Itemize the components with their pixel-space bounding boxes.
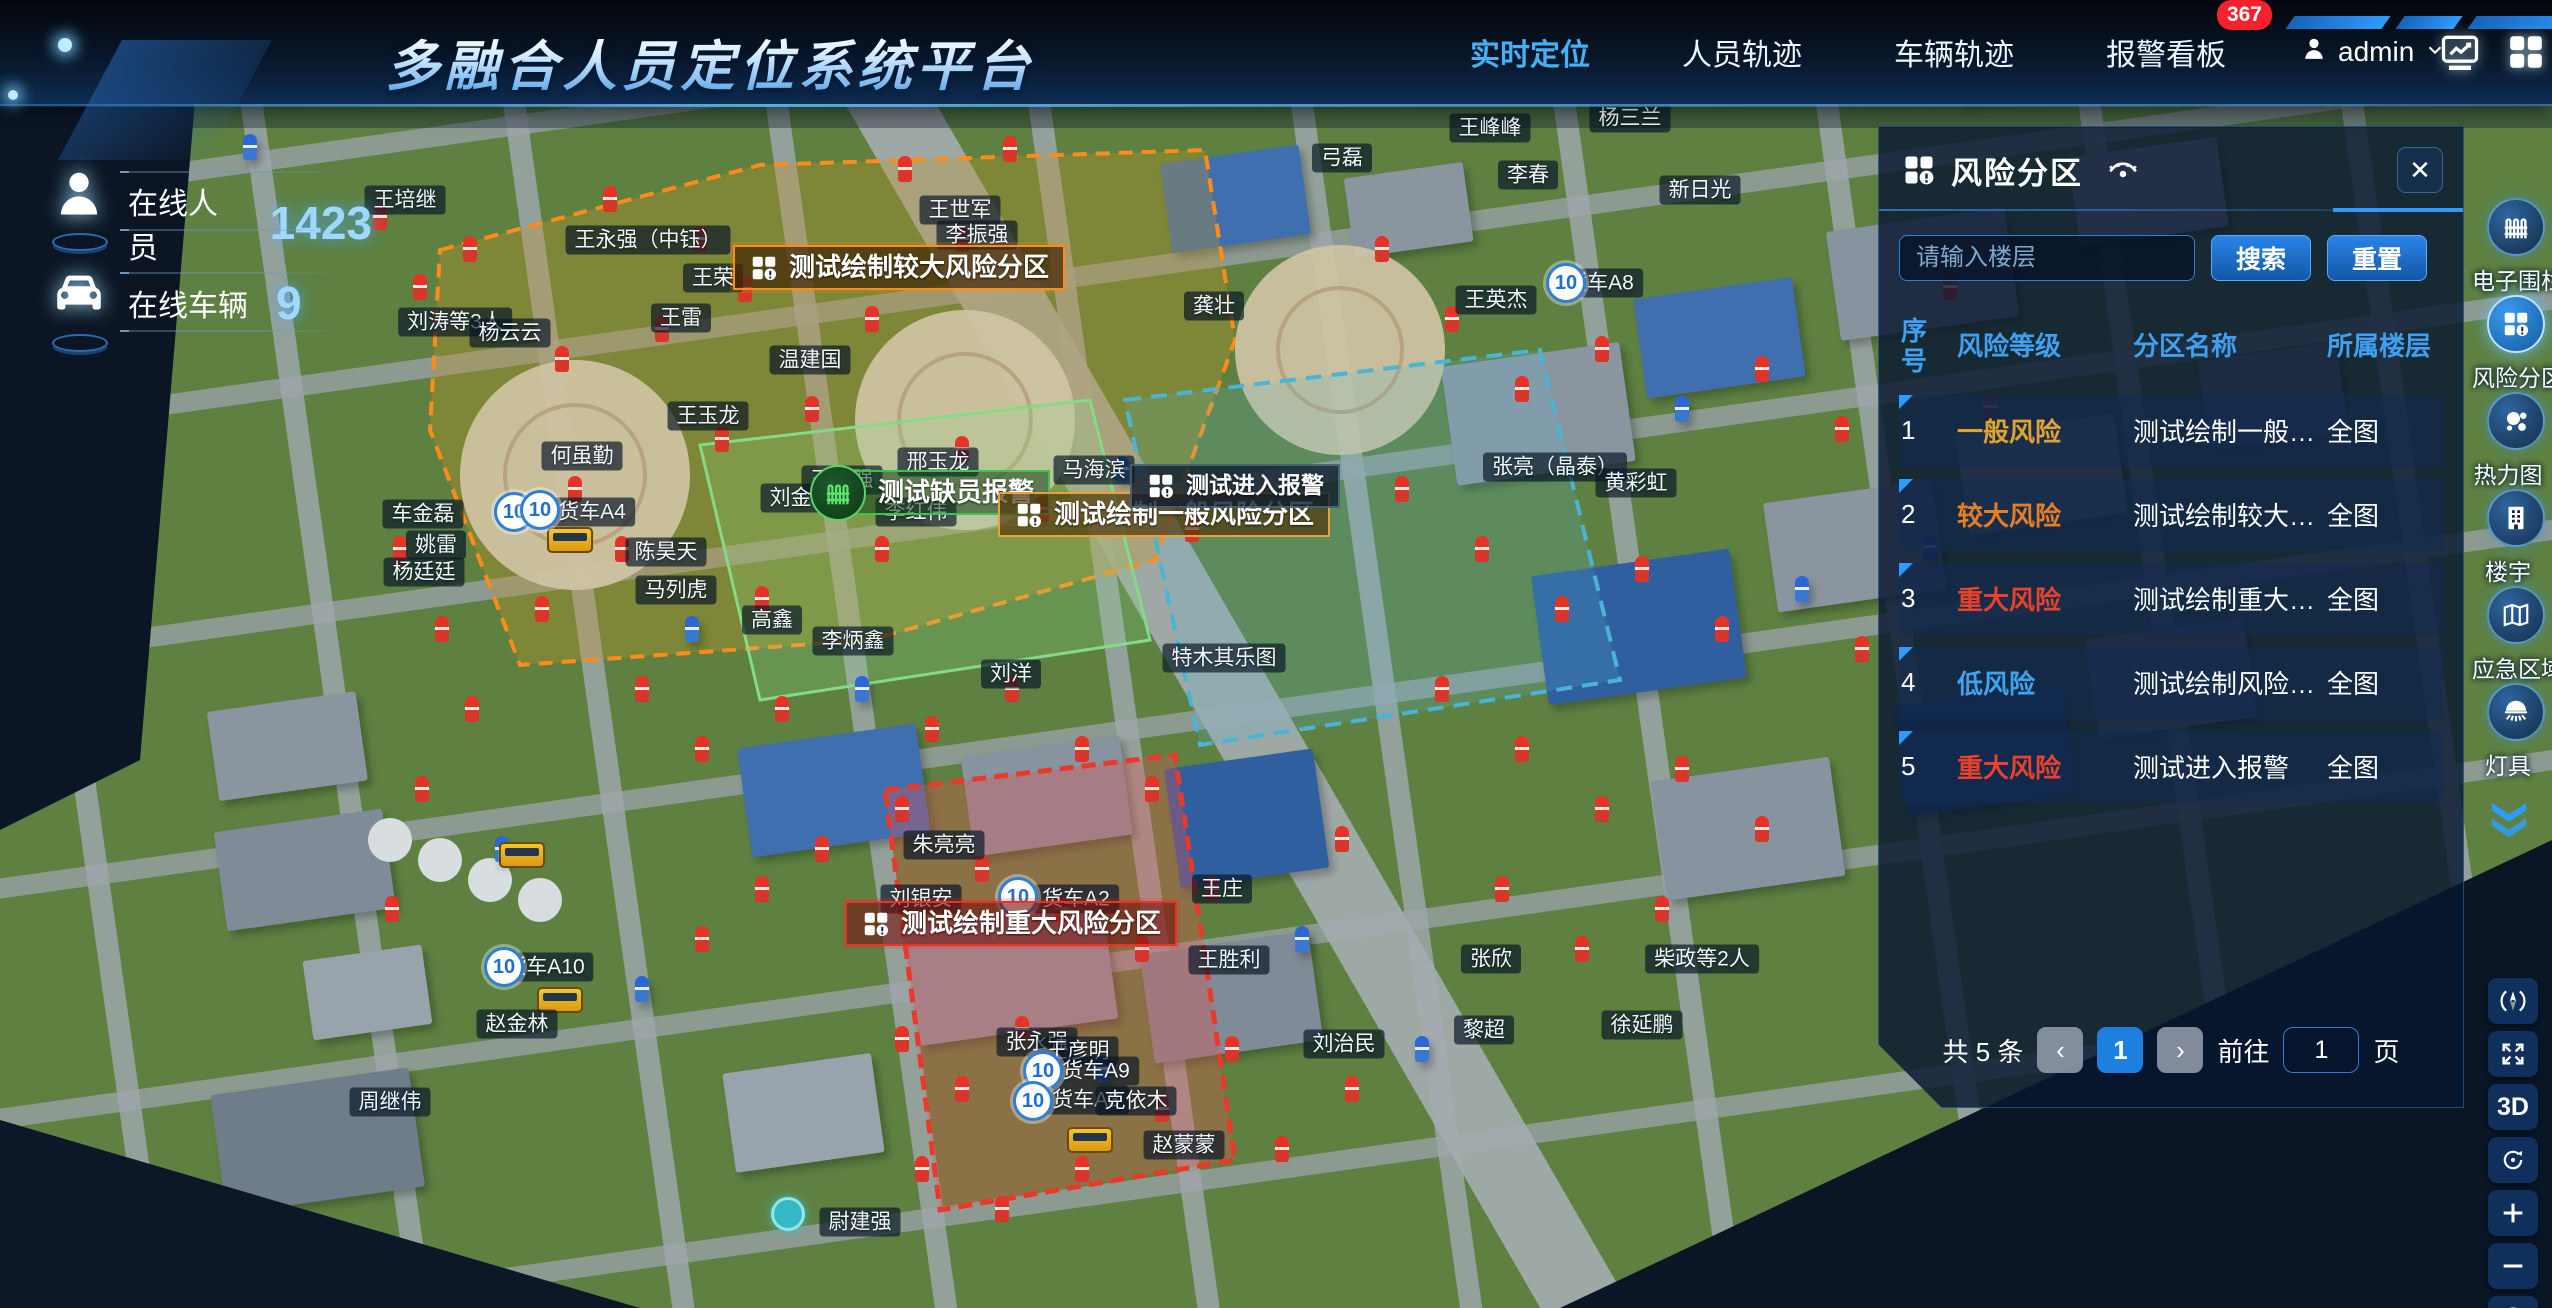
stat-online-vehicles: 在线车辆9 <box>42 272 372 332</box>
zone-label-text: 测试绘制重大风险分区 <box>901 908 1161 939</box>
page-unit: 页 <box>2373 1032 2399 1069</box>
person-label: 刘治民 <box>1304 1030 1385 1059</box>
row-index: 3 <box>1901 583 1949 614</box>
riskgrid-icon <box>1014 500 1044 530</box>
stat-label: 在线人员 <box>128 179 242 267</box>
risk-zone-panel: 风险分区 ✕ 搜索 重置 序号风险等级分区名称所属楼层 1一般风险测试绘制一般…… <box>1878 126 2464 1108</box>
person-marker[interactable] <box>1335 826 1349 852</box>
person-label: 王永强（中钰） <box>566 226 731 255</box>
person-label: 温建国 <box>770 346 851 375</box>
toolbar-heatmap[interactable]: 热力图 <box>2480 392 2552 490</box>
person-label: 赵金林 <box>477 1010 558 1039</box>
total-count: 共 5 条 <box>1943 1032 2024 1069</box>
toolbar-buildings[interactable]: 楼宇 <box>2480 489 2552 587</box>
divider <box>1879 209 2463 211</box>
monitor-chart-icon[interactable] <box>2438 30 2482 74</box>
glow-dot <box>8 90 18 100</box>
person-marker[interactable] <box>1495 876 1509 902</box>
person-marker[interactable] <box>1475 536 1489 562</box>
header-actions <box>2438 0 2548 104</box>
person-marker[interactable] <box>815 836 829 862</box>
person-marker[interactable] <box>1755 816 1769 842</box>
person-label: 王胜利 <box>1189 946 1270 975</box>
next-page-button[interactable]: › <box>2157 1027 2203 1073</box>
riskgrid-icon <box>1146 471 1176 501</box>
current-page[interactable]: 1 <box>2097 1027 2143 1073</box>
person-marker[interactable] <box>955 1076 969 1102</box>
toolbar-label: 楼宇 <box>2472 553 2544 587</box>
prev-page-button[interactable]: ‹ <box>2037 1027 2083 1073</box>
nav-item-realtime-location[interactable]: 实时定位 <box>1470 30 1590 74</box>
visibility-eye-icon[interactable] <box>2103 153 2143 187</box>
person-label: 克依木 <box>1096 1087 1177 1116</box>
cluster-badge[interactable]: 10 <box>1546 263 1586 303</box>
risk-zone-row[interactable]: 1一般风险测试绘制一般…全图 <box>1899 395 2443 467</box>
column-header: 分区名称 <box>2133 332 2319 362</box>
user-icon <box>2300 35 2328 70</box>
person-marker[interactable] <box>1375 236 1389 262</box>
map-control-compass[interactable] <box>2488 978 2538 1024</box>
toolbar-label: 电子围栏 <box>2472 262 2544 296</box>
person-marker[interactable] <box>1675 396 1689 422</box>
person-label: 徐延鹏 <box>1602 1011 1683 1040</box>
person-label: 王培继 <box>365 186 446 215</box>
person-marker[interactable] <box>1225 1036 1239 1062</box>
person-marker[interactable] <box>465 696 479 722</box>
person-marker[interactable] <box>915 1156 929 1182</box>
zone-floor: 全图 <box>2327 748 2457 785</box>
person-marker[interactable] <box>805 396 819 422</box>
zone-label[interactable]: 测试绘制重大风险分区 <box>845 901 1177 946</box>
person-marker[interactable] <box>685 616 699 642</box>
toolbar-electronic-fence[interactable]: 电子围栏 <box>2480 198 2552 296</box>
close-icon[interactable]: ✕ <box>2397 147 2443 193</box>
person-label: 马海滨 <box>1054 456 1135 485</box>
table-header: 序号风险等级分区名称所属楼层 <box>1899 307 2443 395</box>
zone-name: 测试进入报警 <box>2133 748 2319 785</box>
person-marker[interactable] <box>1795 576 1809 602</box>
person-label: 姚雷 <box>406 531 466 560</box>
person-label: 王雷 <box>651 304 711 333</box>
stat-label: 在线车辆 <box>128 281 248 325</box>
column-header: 序号 <box>1901 317 1949 377</box>
app-root: 王培继王永强（中钰）王荣刘涛等3人杨云云王雷温建国王玉龙何虽勤车金磊姚雷杨廷廷邢… <box>0 0 2552 1308</box>
nav-item-vehicle-track[interactable]: 车辆轨迹 <box>1894 30 2014 74</box>
riskgrid-icon <box>2487 295 2545 353</box>
heatmap-icon <box>2487 392 2545 450</box>
map-control-fullscreen[interactable] <box>2488 1031 2538 1077</box>
building-icon <box>2487 489 2545 547</box>
nav-item-alarm-board[interactable]: 报警看板367 <box>2106 30 2226 74</box>
person-label: 王峰峰 <box>1450 114 1531 143</box>
person-marker[interactable] <box>1345 1076 1359 1102</box>
person-marker[interactable] <box>1435 676 1449 702</box>
person-label: 刘洋 <box>981 660 1041 689</box>
person-marker[interactable] <box>925 716 939 742</box>
cluster-badge[interactable]: 10 <box>484 947 524 987</box>
toolbar-risk-zones[interactable]: 风险分区 <box>2480 295 2552 393</box>
person-label: 特木其乐图 <box>1163 644 1286 673</box>
person-marker[interactable] <box>1835 416 1849 442</box>
person-marker[interactable] <box>1575 936 1589 962</box>
stat-value: 1423 <box>270 200 372 246</box>
person-label: 李春 <box>1498 161 1558 190</box>
page-title: 多融合人员定位系统平台 <box>380 22 1040 101</box>
row-index: 4 <box>1901 667 1949 698</box>
header: 多融合人员定位系统平台 实时定位人员轨迹车辆轨迹报警看板367 admin <box>0 0 2552 104</box>
person-marker[interactable] <box>1395 476 1409 502</box>
person-label: 张欣 <box>1461 945 1521 974</box>
person-label: 周继伟 <box>350 1088 431 1117</box>
zone-label-text: 测试进入报警 <box>1186 472 1324 500</box>
risk-zone-row[interactable]: 4低风险测试绘制风险…全图 <box>1899 647 2443 719</box>
person-marker[interactable] <box>875 536 889 562</box>
toolbar-lights[interactable]: 灯具 <box>2480 683 2552 781</box>
person-label: 李炳鑫 <box>813 627 894 656</box>
pagination: 共 5 条 ‹ 1 › 前往 页 <box>1879 1027 2463 1073</box>
zone-floor: 全图 <box>2327 412 2457 449</box>
user-menu[interactable]: admin <box>2300 0 2446 104</box>
zone-name: 测试绘制风险… <box>2133 664 2319 701</box>
person-marker[interactable] <box>1003 136 1017 162</box>
nav-item-person-track[interactable]: 人员轨迹 <box>1682 30 1802 74</box>
toolbar-label: 热力图 <box>2472 456 2544 490</box>
person-marker[interactable] <box>385 896 399 922</box>
person-marker[interactable] <box>695 736 709 762</box>
person-label: 王英杰 <box>1456 286 1537 315</box>
person-marker[interactable] <box>1755 356 1769 382</box>
person-label: 陈昊天 <box>626 538 707 567</box>
person-marker[interactable] <box>1635 556 1649 582</box>
person-marker[interactable] <box>635 976 649 1002</box>
stat-value: 9 <box>276 280 302 326</box>
person-label: 弓磊 <box>1312 144 1372 173</box>
person-marker[interactable] <box>855 676 869 702</box>
person-marker[interactable] <box>415 776 429 802</box>
person-marker[interactable] <box>1595 336 1609 362</box>
cluster-badge[interactable]: 10 <box>1013 1081 1053 1121</box>
person-marker[interactable] <box>435 616 449 642</box>
person-label: 货车A4 <box>549 498 635 527</box>
person-label: 王庄 <box>1192 875 1252 904</box>
map-control-zoom-in[interactable] <box>2488 1190 2538 1236</box>
truck-icon[interactable] <box>1067 1127 1113 1153</box>
user-name: admin <box>2338 36 2414 68</box>
person-marker[interactable] <box>1075 1156 1089 1182</box>
map-control-basemap-globe[interactable] <box>2488 1296 2538 1308</box>
risk-level: 较大风险 <box>1957 496 2125 533</box>
person-marker[interactable] <box>1145 776 1159 802</box>
person-label: 杨三兰 <box>1590 104 1671 133</box>
main-nav: 实时定位人员轨迹车辆轨迹报警看板367 <box>1470 0 2226 104</box>
zone-label[interactable]: 测试绘制较大风险分区 <box>733 245 1065 290</box>
toolbar-emergency-area[interactable]: 应急区域 <box>2480 586 2552 684</box>
person-label: 杨云云 <box>470 319 551 348</box>
row-index: 5 <box>1901 751 1949 782</box>
zone-name: 测试绘制重大… <box>2133 580 2319 617</box>
map-control-reset-view[interactable] <box>2488 1137 2538 1183</box>
column-header: 风险等级 <box>1957 332 2125 362</box>
goto-label: 前往 <box>2217 1032 2269 1069</box>
fence-icon <box>810 465 866 521</box>
stat-online-persons: 在线人员1423 <box>42 171 372 231</box>
riskgrid-icon <box>749 253 779 283</box>
apps-grid-icon[interactable] <box>2504 30 2548 74</box>
zone-name: 测试绘制一般… <box>2133 412 2319 449</box>
person-label: 杨廷廷 <box>384 558 465 587</box>
person-marker[interactable] <box>1275 1136 1289 1162</box>
person-marker[interactable] <box>243 134 257 160</box>
person-marker[interactable] <box>898 156 912 182</box>
car-icon <box>48 266 110 324</box>
truck-icon[interactable] <box>547 527 593 553</box>
person-marker[interactable] <box>695 926 709 952</box>
person-label: 黄彩虹 <box>1596 469 1677 498</box>
row-index: 1 <box>1901 415 1949 446</box>
person-marker[interactable] <box>463 236 477 262</box>
person-label: 车金磊 <box>383 500 464 529</box>
person-label: 柴政等2人 <box>1645 945 1759 974</box>
person-marker[interactable] <box>1675 756 1689 782</box>
region-icon <box>2487 586 2545 644</box>
risk-zone-row[interactable]: 2较大风险测试绘制较大…全图 <box>1899 479 2443 551</box>
person-marker[interactable] <box>895 1026 909 1052</box>
person-marker[interactable] <box>1515 376 1529 402</box>
person-marker[interactable] <box>1715 616 1729 642</box>
person-label: 朱亮亮 <box>904 831 985 860</box>
person-label: 何虽勤 <box>542 442 623 471</box>
reset-button[interactable]: 重置 <box>2327 235 2427 281</box>
person-marker[interactable] <box>865 306 879 332</box>
teal-circle-marker[interactable] <box>771 1197 805 1231</box>
person-label: 黎超 <box>1454 1016 1514 1045</box>
row-index: 2 <box>1901 499 1949 530</box>
risk-level: 重大风险 <box>1957 580 2125 617</box>
zone-floor: 全图 <box>2327 580 2457 617</box>
map-control-mode-3d[interactable]: 3D <box>2488 1084 2538 1130</box>
alarm-count-badge: 367 <box>2217 0 2272 30</box>
person-label: 货车A9 <box>1053 1057 1139 1086</box>
toolbar-expand-icon[interactable] <box>2486 800 2546 845</box>
person-label: 高鑫 <box>742 606 802 635</box>
toolbar-label: 灯具 <box>2472 747 2544 781</box>
risk-zone-row[interactable]: 5重大风险测试进入报警全图 <box>1899 731 2443 803</box>
person-marker[interactable] <box>1855 636 1869 662</box>
person-marker[interactable] <box>555 346 569 372</box>
person-marker[interactable] <box>1415 1036 1429 1062</box>
column-header: 所属楼层 <box>2327 332 2457 362</box>
person-marker[interactable] <box>975 856 989 882</box>
map-control-zoom-out[interactable] <box>2488 1243 2538 1289</box>
person-marker[interactable] <box>1295 926 1309 952</box>
fence-icon <box>2487 198 2545 256</box>
person-icon <box>48 165 110 223</box>
person-marker[interactable] <box>775 696 789 722</box>
truck-icon[interactable] <box>499 842 545 868</box>
risk-level: 一般风险 <box>1957 412 2125 449</box>
person-marker[interactable] <box>1655 896 1669 922</box>
search-button[interactable]: 搜索 <box>2211 235 2311 281</box>
person-label: 尉建强 <box>820 1208 901 1237</box>
lamp-icon <box>2487 683 2545 741</box>
person-label: 新日光 <box>1660 176 1741 205</box>
person-marker[interactable] <box>603 186 617 212</box>
person-label: 龚壮 <box>1184 292 1244 321</box>
zone-floor: 全图 <box>2327 664 2457 701</box>
person-marker[interactable] <box>1515 736 1529 762</box>
person-label: 赵蒙蒙 <box>1144 1131 1225 1160</box>
panel-title: 风险分区 <box>1951 148 2083 193</box>
toolbar-label: 风险分区 <box>2472 359 2544 393</box>
person-marker[interactable] <box>413 274 427 300</box>
person-label: 王玉龙 <box>668 402 749 431</box>
glow-dot <box>58 38 72 52</box>
zone-name: 测试绘制较大… <box>2133 496 2319 533</box>
risk-level: 重大风险 <box>1957 748 2125 785</box>
zone-label-text: 测试绘制较大风险分区 <box>789 252 1049 283</box>
person-marker[interactable] <box>895 796 909 822</box>
risk-grid-icon <box>1901 152 1937 188</box>
map-control-stack: 3D <box>2488 978 2538 1308</box>
person-marker[interactable] <box>1595 796 1609 822</box>
person-marker[interactable] <box>535 596 549 622</box>
toolbar-label: 应急区域 <box>2472 650 2544 684</box>
floor-search-input[interactable] <box>1899 235 2195 281</box>
person-marker[interactable] <box>755 876 769 902</box>
person-marker[interactable] <box>635 676 649 702</box>
risk-level: 低风险 <box>1957 664 2125 701</box>
riskgrid-icon <box>861 909 891 939</box>
goto-page-input[interactable] <box>2283 1027 2359 1073</box>
zone-label[interactable]: 测试进入报警 <box>1130 464 1340 508</box>
zone-floor: 全图 <box>2327 496 2457 533</box>
person-label: 马列虎 <box>636 576 717 605</box>
cluster-badge[interactable]: 10 <box>520 490 560 530</box>
person-marker[interactable] <box>995 1196 1009 1222</box>
person-marker[interactable] <box>1075 736 1089 762</box>
person-marker[interactable] <box>1555 596 1569 622</box>
risk-zone-row[interactable]: 3重大风险测试绘制重大…全图 <box>1899 563 2443 635</box>
